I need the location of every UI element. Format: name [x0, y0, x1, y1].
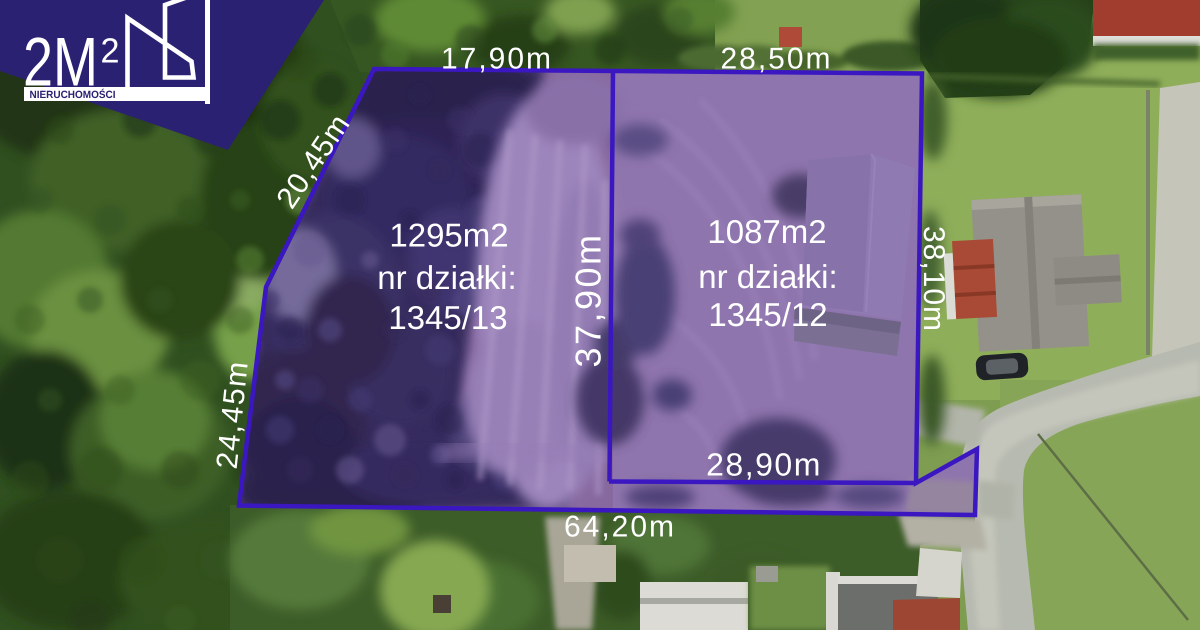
svg-text:17,90m: 17,90m — [441, 43, 553, 76]
svg-text:38,10m: 38,10m — [917, 226, 950, 332]
svg-text:28,90m: 28,90m — [706, 447, 822, 483]
svg-text:1087m2: 1087m2 — [707, 213, 826, 250]
svg-text:nr działki:: nr działki: — [698, 258, 837, 295]
svg-text:2: 2 — [101, 32, 120, 71]
svg-text:64,20m: 64,20m — [564, 511, 676, 544]
svg-text:1345/13: 1345/13 — [388, 299, 507, 336]
svg-text:1345/12: 1345/12 — [708, 296, 827, 333]
svg-text:nr działki:: nr działki: — [377, 259, 516, 296]
svg-text:1295m2: 1295m2 — [389, 217, 508, 254]
svg-text:37,90m: 37,90m — [568, 232, 609, 367]
svg-text:NIERUCHOMOŚCI: NIERUCHOMOŚCI — [30, 88, 116, 101]
svg-text:28,50m: 28,50m — [720, 43, 832, 76]
